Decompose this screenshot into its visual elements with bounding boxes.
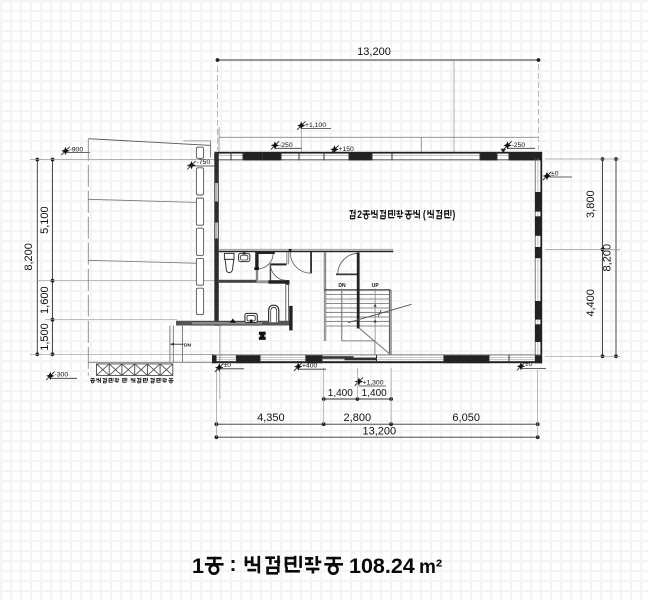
- svg-text:±0: ±0: [551, 170, 559, 177]
- svg-text:DN: DN: [184, 342, 191, 348]
- svg-text:2: 2: [357, 209, 362, 221]
- svg-text:m²: m²: [419, 557, 442, 578]
- svg-text:4,350: 4,350: [257, 412, 285, 424]
- svg-text:6,050: 6,050: [452, 412, 480, 424]
- svg-text:): ): [452, 209, 455, 221]
- svg-text:1,600: 1,600: [39, 286, 51, 314]
- svg-text:1,500: 1,500: [39, 323, 51, 351]
- svg-text:13,200: 13,200: [357, 46, 391, 58]
- svg-text:13,200: 13,200: [362, 426, 396, 438]
- svg-text:1,400: 1,400: [362, 388, 387, 399]
- svg-text:1,400: 1,400: [328, 388, 353, 399]
- svg-text:8,200: 8,200: [602, 244, 614, 272]
- svg-text:5,100: 5,100: [39, 206, 51, 234]
- svg-text:DN: DN: [338, 283, 346, 289]
- svg-text:3,800: 3,800: [585, 190, 597, 218]
- svg-text:8,200: 8,200: [23, 243, 35, 271]
- svg-text:+400: +400: [302, 362, 318, 369]
- svg-text:1: 1: [192, 554, 204, 578]
- svg-text:-250: -250: [279, 142, 293, 149]
- svg-text:108.24: 108.24: [349, 554, 415, 578]
- svg-text:-300: -300: [55, 372, 69, 379]
- svg-text:UP: UP: [372, 283, 380, 289]
- svg-text:+1,100: +1,100: [305, 122, 326, 129]
- svg-text:-250: -250: [512, 142, 526, 149]
- svg-text:2,800: 2,800: [344, 412, 372, 424]
- svg-text:4,400: 4,400: [585, 289, 597, 317]
- svg-text:-750: -750: [197, 159, 211, 166]
- svg-text::: :: [230, 553, 237, 576]
